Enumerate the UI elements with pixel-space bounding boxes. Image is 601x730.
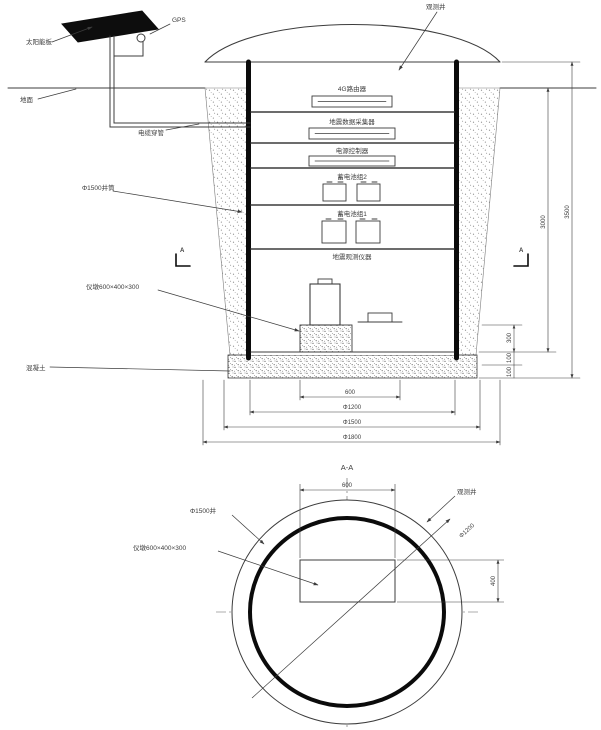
plan-view: Φ1200 A-A 600 400 Φ1500井 仪墩600×400×300 观… bbox=[133, 463, 504, 728]
seismometer-device bbox=[310, 279, 340, 325]
dim-depth-inner: 3000 bbox=[541, 215, 547, 229]
plan-dim-diagonal: Φ1200 bbox=[459, 523, 477, 540]
svg-text:A: A bbox=[180, 248, 185, 254]
equip-label-powerctrl: 电源控制器 bbox=[336, 146, 369, 155]
section-mark-right: A bbox=[514, 248, 528, 266]
pier-slab-dimensions bbox=[482, 325, 522, 378]
plan-label-dome: 观测井 bbox=[457, 487, 477, 496]
router-device bbox=[312, 96, 392, 107]
label-ground: 地面 bbox=[20, 95, 34, 104]
equip-label-battery2: 蓄电池组2 bbox=[337, 172, 367, 181]
label-solar-panel: 太阳能板 bbox=[26, 37, 53, 46]
plan-title: A-A bbox=[341, 463, 354, 472]
backfill-right bbox=[458, 88, 500, 355]
dim-slab-1: 100 bbox=[507, 352, 513, 363]
dim-pier-height: 300 bbox=[507, 332, 513, 343]
section-view: 4G路由器 地震数据采集器 电源控制器 蓄电池组2 蓄电池组1 bbox=[8, 2, 596, 445]
plan-dim-top: 600 bbox=[342, 483, 353, 489]
backfill-left bbox=[205, 88, 247, 355]
datalogger-device bbox=[309, 128, 395, 139]
dim-600: 600 bbox=[345, 390, 356, 396]
dim-1200: Φ1200 bbox=[343, 405, 362, 411]
base-slab bbox=[228, 355, 477, 378]
dim-1800: Φ1800 bbox=[343, 435, 362, 441]
label-well-wall: Φ1500井筒 bbox=[82, 183, 115, 192]
label-dome: 观测井 bbox=[426, 2, 446, 11]
label-gps: GPS bbox=[172, 17, 186, 24]
plan-pier-rect bbox=[300, 560, 395, 602]
label-concrete: 混凝土 bbox=[26, 363, 46, 372]
engineering-drawing: 4G路由器 地震数据采集器 电源控制器 蓄电池组2 蓄电池组1 bbox=[0, 0, 601, 730]
equip-label-seismometer: 地震观测仪器 bbox=[333, 252, 373, 261]
equip-label-datalogger: 地震数据采集器 bbox=[329, 117, 375, 126]
equip-label-battery1: 蓄电池组1 bbox=[337, 209, 367, 218]
label-pier: 仪墩600×400×300 bbox=[86, 282, 140, 291]
plan-dim-right: 400 bbox=[491, 575, 497, 586]
dim-slab-2: 100 bbox=[507, 366, 513, 377]
drawing-sheet: 4G路由器 地震数据采集器 电源控制器 蓄电池组2 蓄电池组1 bbox=[0, 0, 601, 730]
svg-text:A: A bbox=[519, 248, 524, 254]
plan-label-pier: 仪墩600×400×300 bbox=[133, 543, 187, 552]
plan-label-well-wall: Φ1500井 bbox=[190, 506, 217, 515]
section-mark-left: A bbox=[176, 248, 190, 266]
instrument-pier bbox=[300, 325, 352, 352]
dim-depth-outer: 3500 bbox=[565, 205, 571, 219]
powerctrl-device bbox=[309, 156, 395, 166]
gps-antenna bbox=[114, 34, 145, 56]
equip-label-router: 4G路由器 bbox=[338, 84, 367, 93]
dim-1500: Φ1500 bbox=[343, 420, 362, 426]
label-conduit: 电缆穿管 bbox=[138, 128, 165, 137]
dome-cover bbox=[205, 25, 500, 63]
